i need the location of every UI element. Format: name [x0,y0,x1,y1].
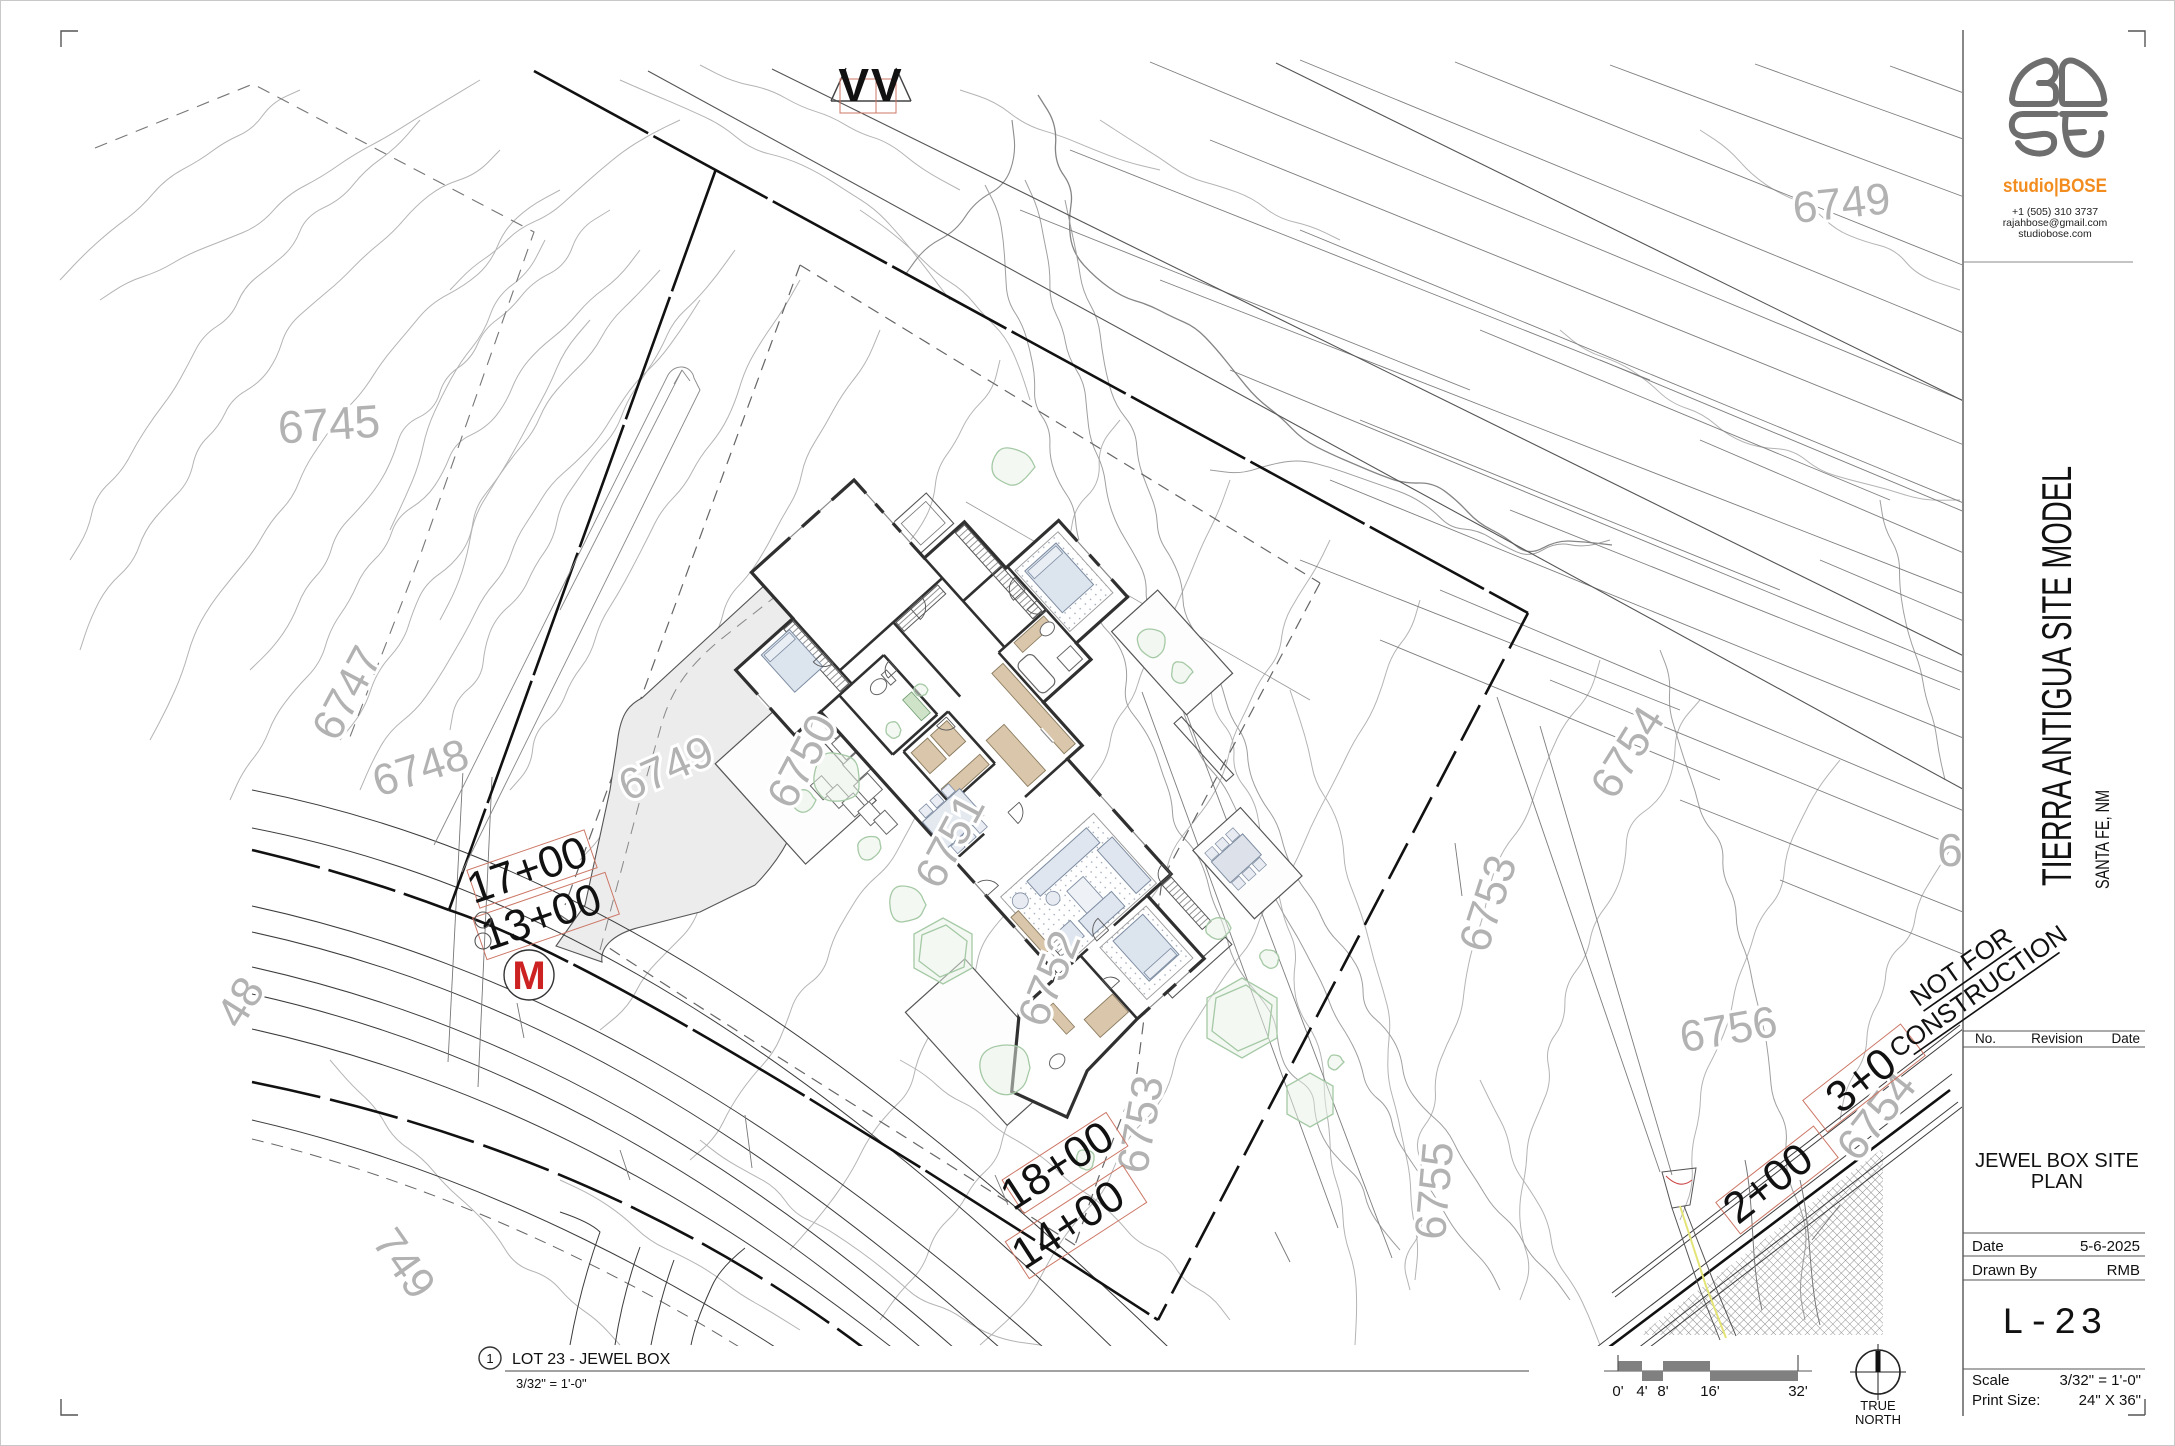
svg-text:M: M [512,954,545,998]
svg-text:LOT 23 - JEWEL BOX: LOT 23 - JEWEL BOX [512,1351,671,1368]
svg-text:L-23: L-23 [2002,1303,2107,1345]
svg-text:6755: 6755 [1406,1140,1463,1242]
svg-text:RMB: RMB [2107,1262,2140,1279]
svg-text:6749: 6749 [1790,174,1892,233]
svg-text:studio|BOSE: studio|BOSE [2003,176,2107,197]
svg-text:6745: 6745 [276,395,382,454]
svg-text:4': 4' [1636,1383,1647,1400]
svg-text:3/32" = 1'-0": 3/32" = 1'-0" [516,1376,587,1391]
svg-text:Drawn By: Drawn By [1972,1262,2038,1279]
svg-text:0': 0' [1612,1383,1623,1400]
svg-text:16': 16' [1700,1383,1720,1400]
svg-text:No.: No. [1975,1031,1996,1046]
svg-text:8': 8' [1657,1383,1668,1400]
svg-text:Print Size:: Print Size: [1972,1392,2040,1409]
svg-text:24" X 36": 24" X 36" [2079,1392,2141,1409]
svg-text:32': 32' [1788,1383,1808,1400]
svg-text:5-6-2025: 5-6-2025 [2080,1238,2140,1255]
svg-text:TRUE: TRUE [1860,1398,1896,1413]
svg-text:Date: Date [2111,1031,2140,1046]
svg-text:JEWEL BOX SITE: JEWEL BOX SITE [1975,1150,2139,1172]
svg-text:TIERRA ANTIGUA SITE MODEL: TIERRA ANTIGUA SITE MODEL [2033,466,2080,886]
svg-text:SANTA FE, NM: SANTA FE, NM [2093,790,2114,889]
svg-text:6: 6 [1937,824,1963,876]
svg-text:VV: VV [838,59,903,111]
svg-text:studiobose.com: studiobose.com [2018,228,2092,240]
svg-text:PLAN: PLAN [2031,1171,2083,1193]
svg-text:1: 1 [486,1351,493,1366]
svg-text:Scale: Scale [1972,1372,2010,1389]
svg-text:Revision: Revision [2031,1031,2083,1046]
svg-text:NORTH: NORTH [1855,1412,1901,1427]
svg-text:Date: Date [1972,1238,2004,1255]
svg-text:3/32" = 1'-0": 3/32" = 1'-0" [2060,1372,2141,1389]
